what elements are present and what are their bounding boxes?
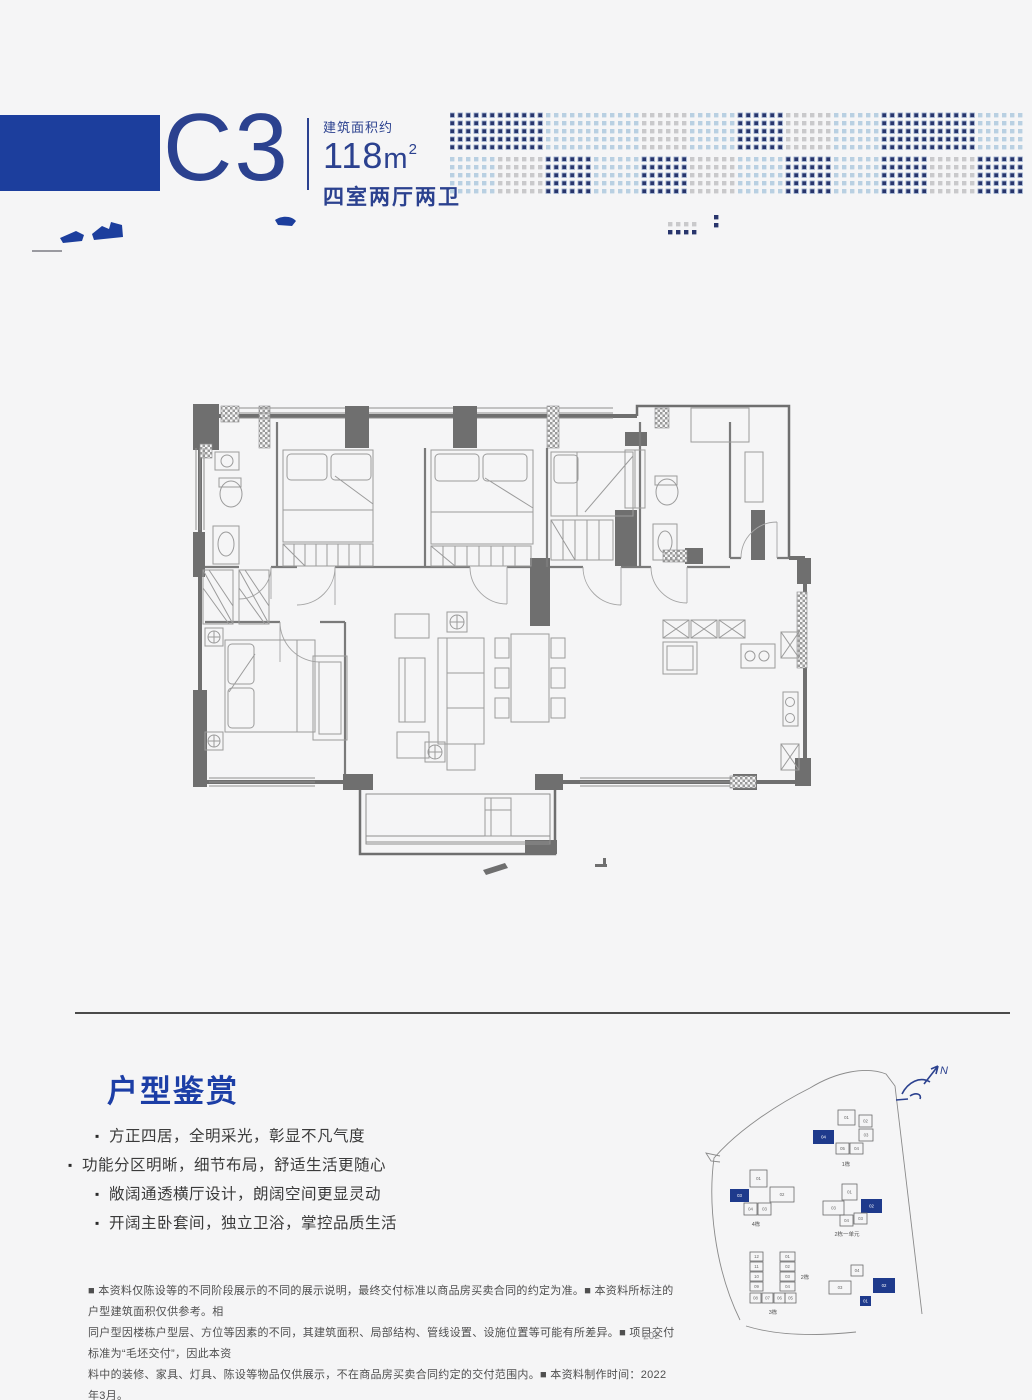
furniture	[203, 408, 799, 836]
cluster-label: 2栋	[801, 1273, 810, 1281]
site-unit-label: 01	[844, 1115, 849, 1120]
dot-pattern-decoration	[450, 110, 1032, 242]
site-unit-label: 12	[754, 1254, 759, 1259]
site-unit-label: 03	[785, 1274, 790, 1279]
cluster-label: 4栋	[752, 1220, 761, 1228]
site-unit-label: 03	[831, 1206, 836, 1211]
cluster-label: 3栋	[769, 1308, 778, 1316]
partitions	[205, 422, 789, 774]
site-unit-label: 01	[847, 1190, 852, 1195]
site-unit-label: 04	[748, 1207, 753, 1212]
area-superscript: 2	[409, 141, 418, 158]
floor-plan	[185, 392, 850, 882]
building-cluster: 01020304034栋	[730, 1170, 794, 1228]
header-info: 建筑面积约 118m2 四室两厅两卫	[323, 117, 461, 211]
site-unit-label: 02	[780, 1192, 785, 1197]
area-unit: m	[383, 143, 408, 175]
building-clusters: 0102030405041栋01020304034栋01030204032栋一单…	[730, 1110, 895, 1316]
site-unit-label: 03	[858, 1216, 863, 1221]
ink-artifact-decoration	[30, 212, 360, 267]
building-cluster: 1211100901020304080706053栋	[750, 1252, 796, 1316]
unit-code: C3	[163, 100, 290, 196]
site-unit-label: 03	[737, 1193, 742, 1198]
area-number: 118	[323, 135, 383, 176]
layout-label: 四室两厅两卫	[323, 181, 461, 211]
site-unit-label: 02	[869, 1204, 874, 1209]
site-unit-label: 05	[788, 1296, 793, 1301]
site-unit-label: 03	[838, 1285, 843, 1290]
disclaimer-line: 料中的装修、家具、灯具、陈设等物品仅供展示，不在商品房买卖合同约定的交付范围内。…	[88, 1365, 676, 1400]
door-arcs	[239, 522, 777, 662]
site-unit-label: 11	[754, 1264, 759, 1269]
hatch-piers	[200, 406, 807, 788]
site-boundary	[706, 1070, 922, 1334]
site-plan: N 0102030405041栋01020304034栋01030204032栋…	[698, 1052, 1020, 1357]
site-unit-label: 08	[753, 1296, 758, 1301]
site-unit-label: 10	[754, 1274, 759, 1279]
header-banner	[0, 115, 160, 191]
site-unit-label: 02	[882, 1283, 887, 1288]
site-unit-label: 05	[840, 1146, 845, 1151]
cluster-label: 1栋	[842, 1160, 851, 1168]
site-unit-label: 09	[754, 1284, 759, 1289]
site-unit-label: 03	[864, 1133, 869, 1138]
building-cluster: 040302012栋	[801, 1265, 895, 1306]
north-arrow-icon: N	[896, 1065, 948, 1100]
site-unit-label: 02	[863, 1119, 868, 1124]
site-unit-label: 04	[844, 1218, 849, 1223]
site-unit-label: 04	[855, 1268, 860, 1273]
area-value: 118m2	[323, 138, 461, 174]
outer-walls	[200, 406, 805, 854]
svg-text:N: N	[940, 1065, 948, 1077]
section-divider	[75, 1012, 1010, 1014]
site-unit-label: 04	[821, 1135, 826, 1140]
site-unit-label: 01	[863, 1299, 868, 1304]
selling-points-list: 方正四居，全明采光，彰显不凡气度 功能分区明晰，细节布局，舒适生活更随心 敞阔通…	[95, 1122, 595, 1238]
site-unit-label: 06	[777, 1296, 782, 1301]
cluster-label: 2栋一单元	[834, 1230, 860, 1238]
brochure-page: C3 建筑面积约 118m2 四室两厅两卫	[0, 0, 1032, 1400]
selling-point: 功能分区明晰，细节布局，舒适生活更随心	[68, 1151, 595, 1180]
site-unit-label: 01	[756, 1176, 761, 1181]
disclaimer-line: 同户型因楼栋户型层、方位等因素的不同，其建筑面积、局部结构、管线设置、设施位置等…	[88, 1323, 676, 1365]
scan-artifact: 202	[643, 1331, 660, 1343]
site-unit-label: 04	[785, 1284, 790, 1289]
selling-point: 方正四居，全明采光，彰显不凡气度	[95, 1122, 595, 1151]
selling-point: 开阔主卧套间，独立卫浴，掌控品质生活	[95, 1209, 595, 1238]
building-cluster: 01030204032栋一单元	[823, 1184, 882, 1238]
section-title: 户型鉴赏	[107, 1066, 239, 1111]
disclaimer: ■ 本资料仅陈设等的不同阶段展示的不同的展示说明，最终交付标准以商品房买卖合同的…	[88, 1281, 676, 1400]
disclaimer-line: ■ 本资料仅陈设等的不同阶段展示的不同的展示说明，最终交付标准以商品房买卖合同的…	[88, 1281, 676, 1323]
site-unit-label: 07	[765, 1296, 770, 1301]
site-unit-label: 03	[762, 1207, 767, 1212]
area-label: 建筑面积约	[323, 117, 461, 136]
site-unit-label: 01	[785, 1254, 790, 1259]
site-unit-label: 04	[854, 1146, 859, 1151]
site-unit-label: 02	[785, 1264, 790, 1269]
header-divider	[307, 118, 309, 190]
building-cluster: 0102030405041栋	[813, 1110, 873, 1168]
selling-point: 敞阔通透横厅设计，朗阔空间更显灵动	[95, 1180, 595, 1209]
